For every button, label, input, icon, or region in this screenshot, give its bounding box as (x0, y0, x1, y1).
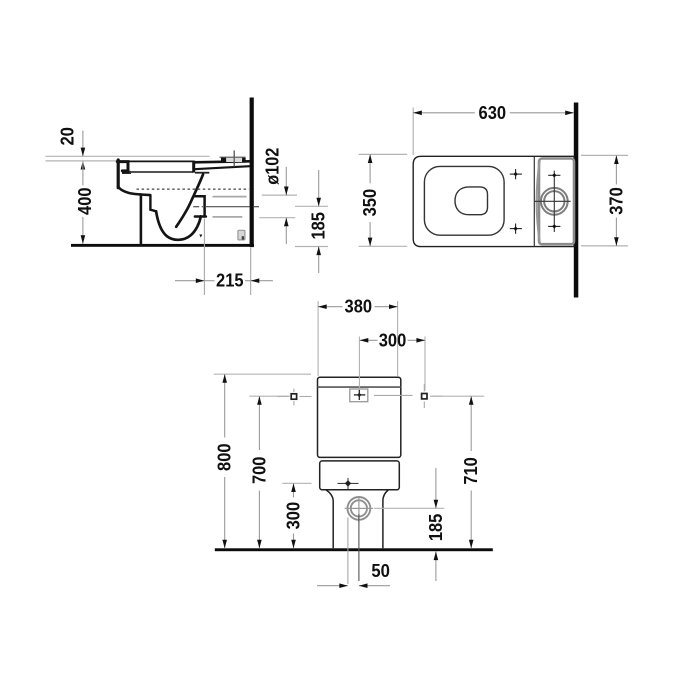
svg-text:630: 630 (479, 103, 507, 123)
svg-text:800: 800 (215, 443, 235, 471)
svg-text:185: 185 (309, 212, 329, 240)
svg-text:300: 300 (379, 330, 407, 350)
svg-text:ø102: ø102 (262, 148, 282, 185)
svg-text:185: 185 (426, 514, 446, 542)
svg-text:400: 400 (75, 187, 95, 215)
svg-text:20: 20 (58, 127, 78, 146)
svg-text:300: 300 (284, 502, 304, 530)
svg-text:215: 215 (216, 271, 244, 291)
svg-text:700: 700 (249, 457, 269, 485)
svg-text:50: 50 (371, 561, 390, 581)
svg-text:370: 370 (606, 187, 626, 215)
svg-text:710: 710 (461, 457, 481, 485)
svg-text:350: 350 (360, 189, 380, 217)
svg-text:380: 380 (345, 297, 373, 317)
